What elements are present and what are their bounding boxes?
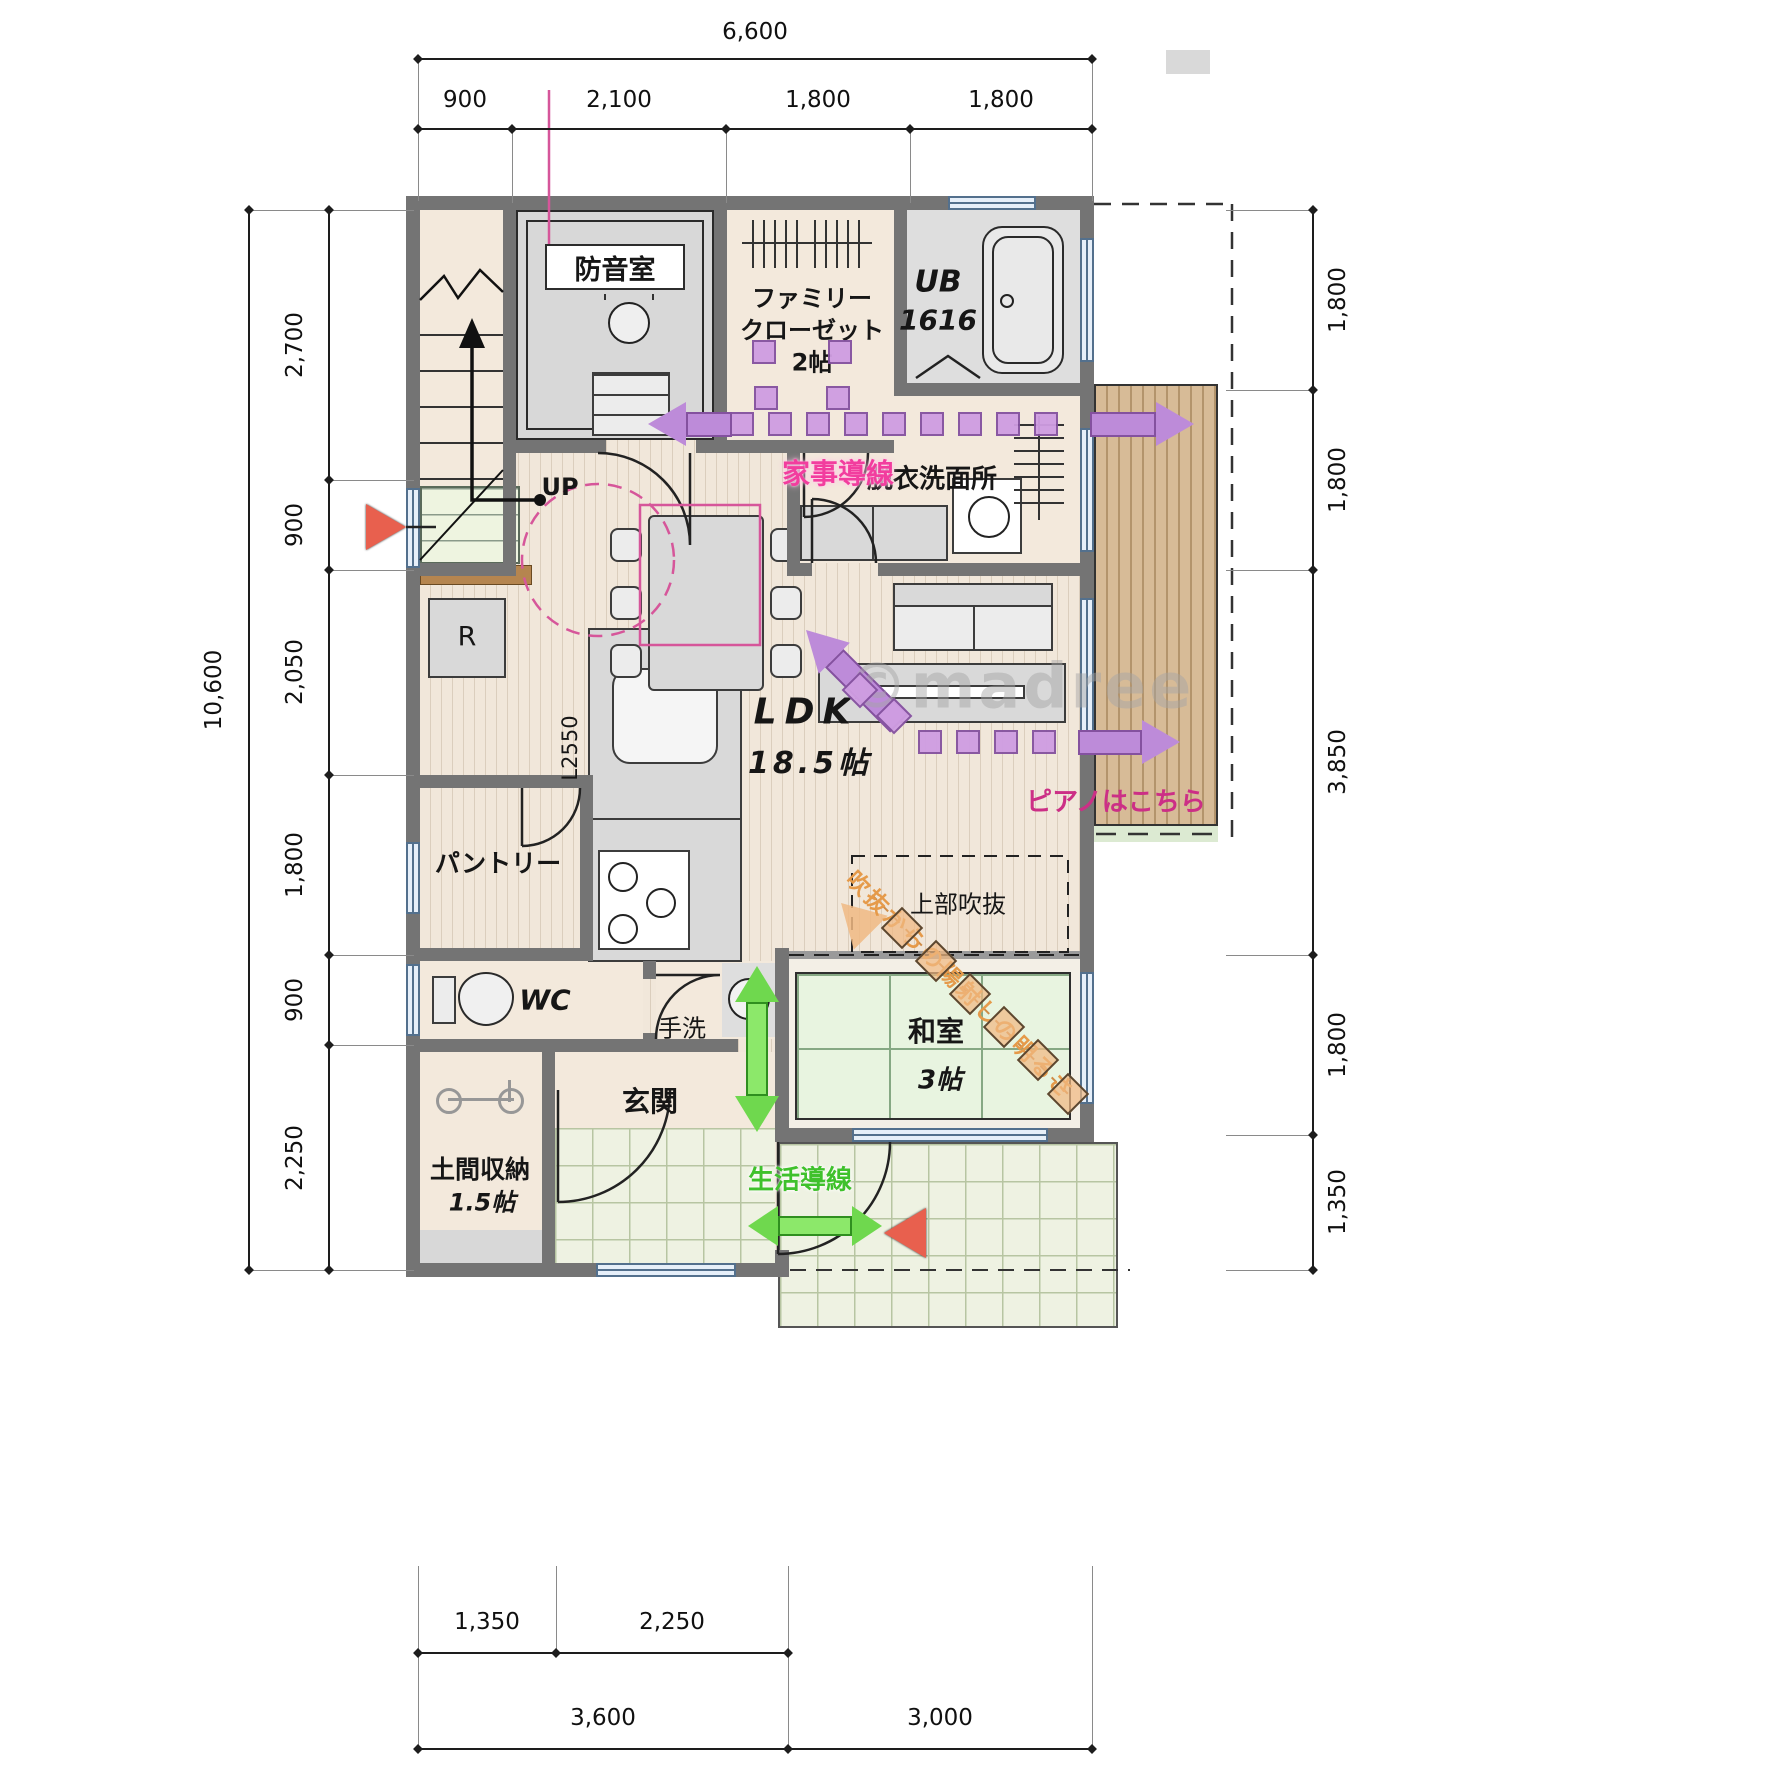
dim-bottom-seg: 1,350 xyxy=(454,1609,520,1635)
route-shaft xyxy=(746,1002,768,1096)
extension-line xyxy=(330,480,414,481)
void-label: 上部吹抜 xyxy=(910,885,1006,920)
green-arrow-left-icon xyxy=(748,1206,778,1246)
route-marker xyxy=(754,386,778,410)
dim-top-total: 6,600 xyxy=(722,19,788,45)
route-shaft xyxy=(1090,412,1156,437)
route-marker xyxy=(730,412,754,436)
green-arrow-right-icon xyxy=(852,1206,882,1246)
route-arrow-right-icon xyxy=(1156,402,1194,446)
dim-right-seg: 1,800 xyxy=(1325,1012,1351,1078)
route-marker xyxy=(1034,412,1058,436)
route-marker xyxy=(1032,730,1056,754)
extension-line xyxy=(1226,1270,1312,1271)
living-flow-label: 生活導線 xyxy=(748,1160,852,1197)
ldk-label: 18.5帖 xyxy=(748,738,872,782)
route-marker xyxy=(844,412,868,436)
dimension-line xyxy=(418,58,1092,60)
kitchen-length-label: L2550 xyxy=(558,715,582,780)
dim-left-seg: 2,250 xyxy=(282,1125,308,1191)
doma-label: 土間収納 xyxy=(430,1150,530,1186)
extension-line xyxy=(330,775,414,776)
side-entry-arrow-icon xyxy=(366,504,406,550)
dim-right-seg: 3,850 xyxy=(1325,729,1351,795)
entrance-label: 玄関 xyxy=(622,1080,678,1120)
piano-flow-label: ピアノはこちら xyxy=(1026,782,1206,819)
housework-flow-label: 家事導線 xyxy=(782,452,894,492)
dim-left-seg: 1,800 xyxy=(282,832,308,898)
route-marker xyxy=(996,412,1020,436)
route-marker xyxy=(826,386,850,410)
unit-bath-label: UB xyxy=(914,265,961,300)
dimension-line xyxy=(418,1748,1092,1750)
soundproof-label: 防音室 xyxy=(575,248,656,287)
extension-line xyxy=(1226,570,1312,571)
extension-line xyxy=(330,210,414,211)
dimension-line xyxy=(328,210,330,1270)
route-marker xyxy=(882,412,906,436)
handwash-label: 手洗 xyxy=(658,1009,706,1044)
extension-line xyxy=(1226,210,1312,211)
extension-line xyxy=(1226,390,1312,391)
fridge-label: R xyxy=(458,622,477,653)
route-marker xyxy=(956,730,980,754)
logo-mark xyxy=(1166,50,1210,74)
doma-label: 1.5帖 xyxy=(449,1183,516,1218)
washitsu-label: 3帖 xyxy=(918,1060,962,1097)
route-marker xyxy=(920,412,944,436)
dimension-line xyxy=(418,128,1092,130)
dimension-line xyxy=(418,1652,788,1654)
extension-line xyxy=(1226,955,1312,956)
route-marker xyxy=(958,412,982,436)
dim-top-seg: 900 xyxy=(443,87,487,113)
route-shaft xyxy=(1078,730,1142,755)
route-shaft xyxy=(686,412,732,437)
route-marker xyxy=(806,412,830,436)
washitsu-label: 和室 xyxy=(908,1010,964,1050)
route-marker xyxy=(994,730,1018,754)
extension-line xyxy=(556,1566,557,1652)
dim-left-seg: 900 xyxy=(282,978,308,1022)
route-marker xyxy=(918,730,942,754)
pantry-label: パントリー xyxy=(435,844,561,880)
dim-top-seg: 2,100 xyxy=(586,87,652,113)
entry-arrow-icon xyxy=(884,1208,926,1258)
extension-line xyxy=(250,1270,330,1271)
dim-right-seg: 1,350 xyxy=(1325,1169,1351,1235)
family-closet-label: 2帖 xyxy=(792,343,833,378)
extension-line xyxy=(910,131,911,203)
route-marker xyxy=(828,340,852,364)
dim-top-seg: 1,800 xyxy=(785,87,851,113)
green-arrow-up-icon xyxy=(735,966,779,1002)
route-marker xyxy=(752,340,776,364)
dim-right-seg: 1,800 xyxy=(1325,267,1351,333)
extension-line xyxy=(330,1270,414,1271)
dimension-line xyxy=(1312,210,1314,1270)
ldk-label: LDK xyxy=(754,692,859,733)
extension-line xyxy=(330,1045,414,1046)
up-label: UP xyxy=(541,473,578,501)
dim-bottom-seg: 2,250 xyxy=(639,1609,705,1635)
extension-line xyxy=(330,570,414,571)
dim-left-seg: 900 xyxy=(282,503,308,547)
route-arrow-right-icon xyxy=(1142,720,1180,764)
extension-line xyxy=(726,131,727,203)
soundproof-label-plaque: 防音室 xyxy=(545,244,685,290)
extension-line xyxy=(512,131,513,203)
green-arrow-down-icon xyxy=(735,1096,779,1132)
route-marker xyxy=(768,412,792,436)
extension-line xyxy=(1226,1135,1312,1136)
floor-plan: 防音室 ファミリー クローゼット 2帖 UB 1616 脱衣洗面所 LDK 18… xyxy=(0,0,1788,1788)
extension-line xyxy=(330,955,414,956)
dim-bottom-seg: 3,600 xyxy=(570,1705,636,1731)
dim-left-seg: 2,700 xyxy=(282,312,308,378)
dim-right-seg: 1,800 xyxy=(1325,447,1351,513)
route-shaft xyxy=(778,1216,852,1236)
dim-top-seg: 1,800 xyxy=(968,87,1034,113)
route-arrow-left-icon xyxy=(648,402,686,446)
unit-bath-label: 1616 xyxy=(899,304,977,337)
wc-label: WC xyxy=(519,984,570,1017)
dimension-line xyxy=(248,210,250,1270)
extension-line xyxy=(1092,1566,1093,1748)
dim-left-total: 10,600 xyxy=(201,650,227,730)
dim-bottom-seg: 3,000 xyxy=(907,1705,973,1731)
family-closet-label: ファミリー xyxy=(752,279,872,314)
dim-left-seg: 2,050 xyxy=(282,639,308,705)
extension-line xyxy=(250,210,330,211)
